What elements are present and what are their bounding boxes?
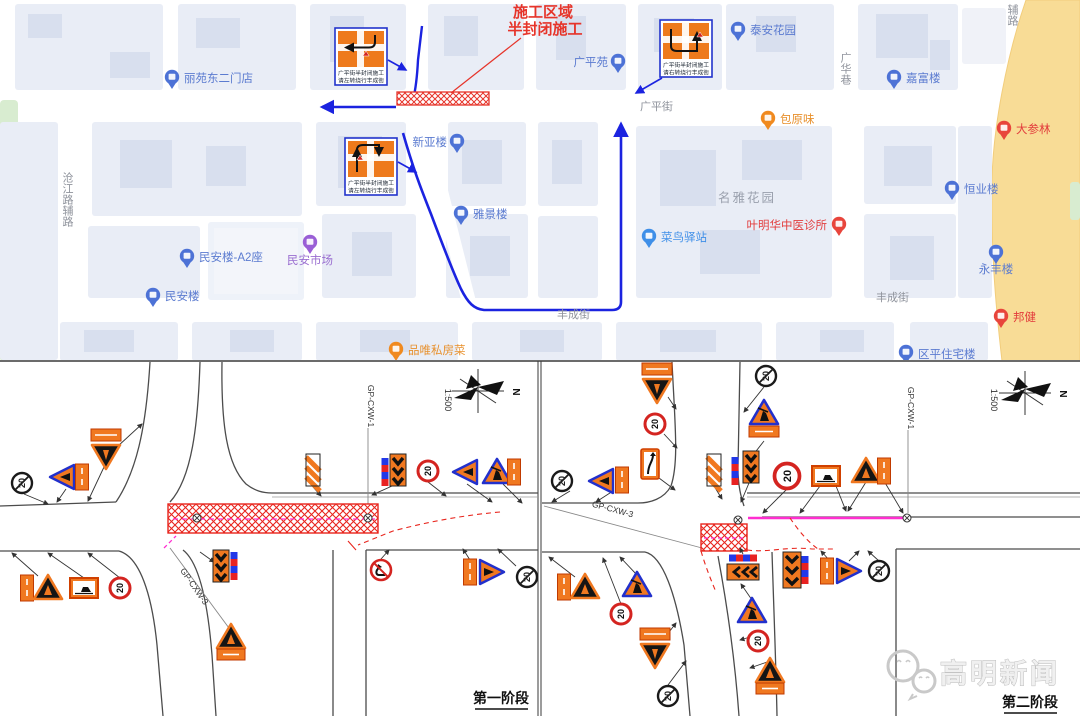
detour-board-icon [616, 467, 629, 493]
poi-label: 大参林 [1016, 122, 1051, 136]
north-label: N [1057, 390, 1068, 397]
survey-point-icon [193, 514, 201, 522]
detour-box1-line2: 请左转绕行丰成街 [338, 77, 384, 85]
city-map: 施工区域 半封闭施工 广平街半封闭施工 请左转绕行丰成街 广平街半封闭施工 请右… [0, 0, 1080, 361]
speed-limit-value: 20 [761, 371, 771, 381]
poi-label: 民安楼 [165, 289, 200, 303]
speed-limit-value: 20 [782, 470, 794, 482]
street-label-vertical: 沧江路辅路 [61, 171, 74, 228]
poi-label: 新亚楼 [413, 135, 448, 149]
construction-area-label-line1: 施工区域 [513, 3, 573, 21]
detour-route-board-icon [641, 449, 659, 479]
speed-limit-value: 20 [423, 466, 433, 476]
street-label: 广平街 [640, 99, 673, 113]
striped-delineator-icon [707, 454, 721, 491]
street-label-vertical: 辅路 [1006, 3, 1019, 27]
detour-board-icon [821, 558, 834, 584]
poi-label: 民安市场 [287, 253, 333, 267]
poi-label: 叶明华中医诊所 [747, 218, 828, 232]
survey-point-icon [734, 516, 742, 524]
poi-label: 菜鸟驿站 [661, 230, 707, 244]
closed-road-hatch [397, 92, 489, 105]
phase1-diagram: GP-CXW-1 GP-CXW-3 1:500 N 20 [0, 360, 539, 716]
axis-label-gp-cxw-1: GP-CXW-1 [366, 385, 376, 428]
axis-label-gp-cxw-1: GP-CXW-1 [906, 387, 916, 430]
poi-label: 嘉富楼 [906, 71, 941, 85]
detour-box3-line2: 请左转绕行丰成街 [348, 187, 394, 195]
phase1-caption: 第一阶段 [473, 690, 529, 706]
speed-limit-value: 20 [753, 636, 763, 646]
speed-limit-value: 20 [522, 572, 532, 582]
poi-label: 广平苑 [574, 56, 609, 69]
detour-board-icon [878, 458, 891, 484]
warning-light-bar-icon [802, 556, 809, 584]
poi-label: 雅景楼 [473, 207, 508, 221]
survey-point-icon [903, 514, 911, 522]
speed-limit-value: 20 [874, 566, 884, 576]
poi-label: 恒业楼 [964, 182, 999, 196]
detour-box2-line1: 广平街半封闭施工 [663, 61, 709, 69]
speed-limit-value: 20 [557, 476, 567, 486]
survey-point-icon [364, 514, 372, 522]
poi-label: 品唯私房菜 [408, 344, 466, 357]
street-label: 丰成街 [876, 290, 909, 304]
construction-area-label-line2: 半封闭施工 [507, 20, 582, 38]
chevron-board-icon [727, 564, 759, 580]
poi-label: 邦健 [1013, 311, 1036, 324]
detour-board-icon [76, 464, 89, 490]
phase2-diagram: GP-CXW-1 GP-CXW-3 1:500 N [539, 360, 1080, 716]
warning-light-bar-icon [382, 458, 389, 486]
detour-board-icon [558, 574, 571, 600]
chevron-board-icon [390, 454, 406, 486]
detour-box3-line1: 广平街半封闭施工 [348, 179, 394, 187]
warning-light-bar-icon [732, 457, 739, 485]
speed-limit-value: 20 [663, 691, 673, 701]
detour-board-icon [464, 559, 477, 585]
scale-label: 1:500 [443, 389, 453, 412]
detour-sign-box-2: 广平街半封闭施工 请右转绕行丰成街 [660, 20, 712, 77]
speed-limit-value: 20 [17, 478, 27, 488]
detour-box1-line1: 广平街半封闭施工 [338, 69, 384, 77]
chevron-board-icon [783, 552, 801, 588]
speed-limit-value: 20 [650, 419, 660, 429]
lane-narrows-board-icon [70, 578, 98, 598]
north-label: N [510, 388, 521, 395]
street-label-vertical: 广华巷 [839, 52, 852, 85]
poi-label: 泰安花园 [750, 23, 796, 37]
detour-sign-box-3: 广平街半封闭施工 请左转绕行丰成街 [345, 138, 397, 195]
poi-label: 永丰楼 [979, 262, 1014, 276]
detour-sign-box-1: 广平街半封闭施工 请左转绕行丰成街 [335, 28, 387, 85]
striped-delineator-icon [306, 454, 320, 491]
screenshot-root: 施工区域 半封闭施工 广平街半封闭施工 请左转绕行丰成街 广平街半封闭施工 请右… [0, 0, 1080, 716]
poi-label: 丽苑东二门店 [184, 71, 253, 85]
poi-label: 区平住宅楼 [918, 347, 976, 361]
detour-box2-line2: 请右转绕行丰成街 [663, 69, 709, 77]
street-label: 丰成街 [557, 307, 590, 321]
poi-label: 民安楼-A2座 [199, 250, 263, 264]
speed-limit-value: 20 [616, 609, 626, 619]
chevron-board-icon [743, 451, 759, 483]
phase2-caption: 第二阶段 [1002, 694, 1058, 710]
warning-light-bar-icon [729, 555, 757, 562]
speed-limit-value: 20 [115, 583, 125, 593]
detour-board-icon [508, 459, 521, 485]
poi-label: 包原味 [780, 113, 815, 126]
area-label: 名雅花园 [718, 190, 776, 205]
warning-light-bar-icon [231, 552, 238, 580]
lane-narrows-board-icon [812, 466, 840, 486]
watermark-text: 高明新闻 [940, 658, 1060, 689]
no-left-turn-sign-icon [371, 560, 391, 580]
scale-label: 1:500 [989, 389, 999, 412]
detour-board-icon [21, 575, 34, 601]
chevron-board-icon [213, 550, 229, 582]
